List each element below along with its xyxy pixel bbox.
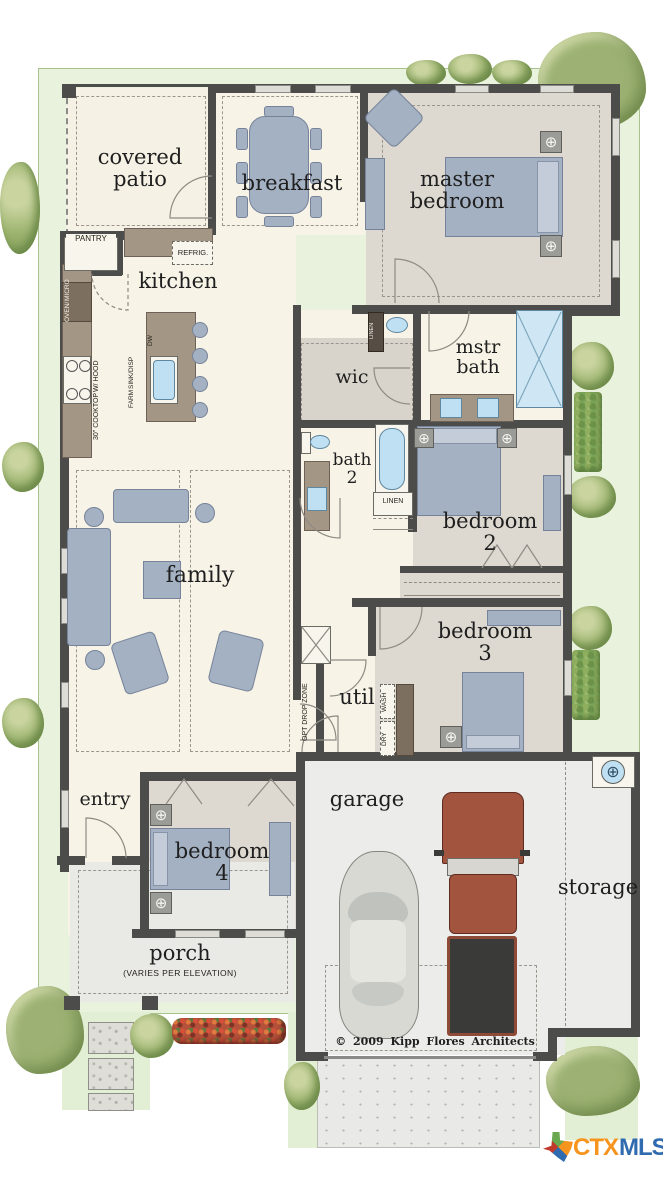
- room-label-bedroom-4: bedroom4: [152, 840, 292, 884]
- chair: [236, 196, 248, 218]
- window: [245, 930, 285, 938]
- bar-stool: [192, 402, 208, 418]
- opt-drop-zone-label: OPT DROP ZONE: [302, 668, 314, 756]
- hedge-icon: [572, 650, 600, 720]
- vanity-sink: [307, 487, 327, 511]
- copyright-text: © 2009 Kipp Flores Architects: [330, 1036, 540, 1048]
- water-heater: ⊕: [601, 760, 625, 784]
- logo-ctx: CTX: [573, 1134, 618, 1162]
- agave-plant-icon: [406, 60, 446, 86]
- sink-basin: [153, 360, 175, 400]
- window: [564, 660, 572, 696]
- porch-post: [64, 996, 80, 1010]
- room-label-family: family: [140, 564, 260, 587]
- texas-logo-icon: [543, 1132, 573, 1162]
- room-label-kitchen: kitchen: [118, 270, 238, 292]
- hedge-icon: [574, 392, 602, 472]
- floor-plan: ⊕ ⊕ LINEN ⊕ ⊕ ⊕ ⊕ ⊕: [0, 0, 663, 1184]
- nightstand: ⊕: [414, 428, 434, 448]
- linen-shelf: [373, 518, 413, 530]
- window: [455, 85, 489, 93]
- bed-pillows: [537, 161, 559, 233]
- wall: [62, 84, 212, 87]
- room-label-storage: storage: [548, 876, 648, 898]
- nightstand: ⊕: [497, 428, 517, 448]
- window: [315, 85, 351, 93]
- washer-dryer: [396, 684, 414, 756]
- window: [540, 85, 574, 93]
- burner-icon: [79, 388, 91, 400]
- room-label-bedroom-2: bedroom2: [420, 510, 560, 554]
- room-label-breakfast: breakfast: [222, 172, 362, 194]
- agave-plant-icon: [492, 60, 532, 86]
- linen-bath-label: LINEN: [374, 498, 412, 505]
- sofa: [113, 489, 189, 523]
- refrig-label: REFRIG.: [173, 248, 213, 257]
- room-label-covered-patio: coveredpatio: [75, 146, 205, 190]
- farm-sink-label: FARMSINK/DISP: [128, 352, 146, 408]
- bar-stool: [192, 348, 208, 364]
- truck-mirror: [520, 850, 530, 856]
- burner-icon: [66, 388, 78, 400]
- driveway: [317, 1058, 540, 1148]
- window: [564, 455, 572, 495]
- wall: [352, 598, 572, 607]
- room-label-wic: wic: [322, 368, 382, 388]
- bush-icon: [568, 476, 616, 518]
- room-label-porch: porch: [100, 942, 260, 964]
- window: [255, 85, 291, 93]
- breakfast-table: [249, 116, 309, 214]
- side-table: [84, 507, 104, 527]
- bar-stool: [192, 376, 208, 392]
- truck-hood: [442, 792, 524, 864]
- tree-icon: [130, 1014, 174, 1058]
- tub-basin: [379, 428, 405, 490]
- nightstand: ⊕: [440, 726, 462, 748]
- side-table: [85, 650, 105, 670]
- room-label-master-bedroom: masterbedroom: [382, 168, 532, 212]
- burner-icon: [66, 360, 78, 372]
- window: [61, 682, 69, 708]
- closet-shelf: [404, 582, 560, 596]
- wall: [533, 1052, 557, 1061]
- wall: [413, 305, 421, 430]
- shower: [516, 310, 563, 408]
- vanity-sink: [477, 398, 499, 418]
- bar-stool: [192, 322, 208, 338]
- cooktop-label: 30" COOKTOPW/ HOOD: [93, 344, 113, 440]
- side-table: [195, 503, 215, 523]
- chair: [310, 128, 322, 150]
- toilet: [310, 435, 330, 449]
- window: [175, 930, 220, 938]
- stepping-stone: [88, 1022, 134, 1054]
- wall: [112, 856, 146, 865]
- room-label-entry: entry: [65, 790, 145, 810]
- chair: [264, 216, 294, 227]
- wash-label: WASH: [381, 686, 394, 718]
- room-label-mstr-bath: mstrbath: [438, 338, 518, 378]
- vanity-sink: [440, 398, 462, 418]
- wall: [368, 598, 376, 656]
- burner-icon: [79, 360, 91, 372]
- nightstand: ⊕: [150, 804, 172, 826]
- truck-cab-roof: [449, 874, 517, 934]
- bush-icon: [568, 342, 614, 390]
- porch-note: (VARIES PER ELEVATION): [80, 968, 280, 978]
- palm-tree-icon: [0, 162, 40, 254]
- wall: [293, 305, 301, 700]
- dw-label: DW: [147, 330, 157, 352]
- car-roof: [350, 920, 406, 982]
- bush-icon: [2, 442, 44, 492]
- pantry-wall: [118, 235, 123, 275]
- garage-door-line: [324, 1056, 536, 1059]
- chair: [310, 196, 322, 218]
- room-label-bath-2: bath2: [322, 452, 382, 488]
- bed-pillows: [466, 735, 520, 749]
- dry-label: DRY: [381, 723, 394, 755]
- wall: [352, 305, 620, 314]
- linen-hall-label: LINEN: [369, 314, 381, 348]
- toilet: [386, 317, 408, 333]
- truck-mirror: [434, 850, 444, 856]
- nightstand: ⊕: [540, 131, 562, 153]
- wall: [296, 752, 305, 1061]
- sofa: [67, 528, 111, 646]
- oven-micro-label: OVEN/MICRO: [64, 284, 90, 322]
- wall: [548, 1028, 640, 1037]
- room-label-bedroom-3: bedroom3: [415, 620, 555, 664]
- chair: [264, 106, 294, 117]
- stepping-stone: [88, 1058, 134, 1090]
- porch-post: [142, 996, 158, 1010]
- window: [612, 118, 620, 156]
- agave-plant-icon: [448, 54, 492, 84]
- flower-hedge-icon: [172, 1018, 286, 1044]
- pantry-label: PANTRY: [66, 234, 116, 243]
- wall: [400, 566, 570, 573]
- chair: [236, 128, 248, 150]
- room-label-util: util: [327, 686, 387, 708]
- stepping-stone: [88, 1093, 134, 1111]
- wall: [57, 856, 85, 865]
- palm-tree-icon: [546, 1046, 640, 1116]
- room-label-garage: garage: [317, 788, 417, 810]
- palm-tree-icon: [284, 1062, 320, 1110]
- ctxmls-logo: CTX MLS: [543, 1128, 661, 1168]
- wall: [208, 87, 216, 235]
- bush-icon: [2, 698, 44, 748]
- patio-post: [62, 84, 76, 98]
- truck-bed: [447, 936, 517, 1036]
- drop-zone-cabinet: [301, 626, 331, 664]
- window: [612, 240, 620, 278]
- nightstand: ⊕: [540, 235, 562, 257]
- wall: [140, 772, 297, 781]
- wall: [296, 752, 640, 761]
- nightstand: ⊕: [150, 892, 172, 914]
- logo-mls: MLS: [619, 1134, 663, 1162]
- bush-icon: [568, 606, 612, 650]
